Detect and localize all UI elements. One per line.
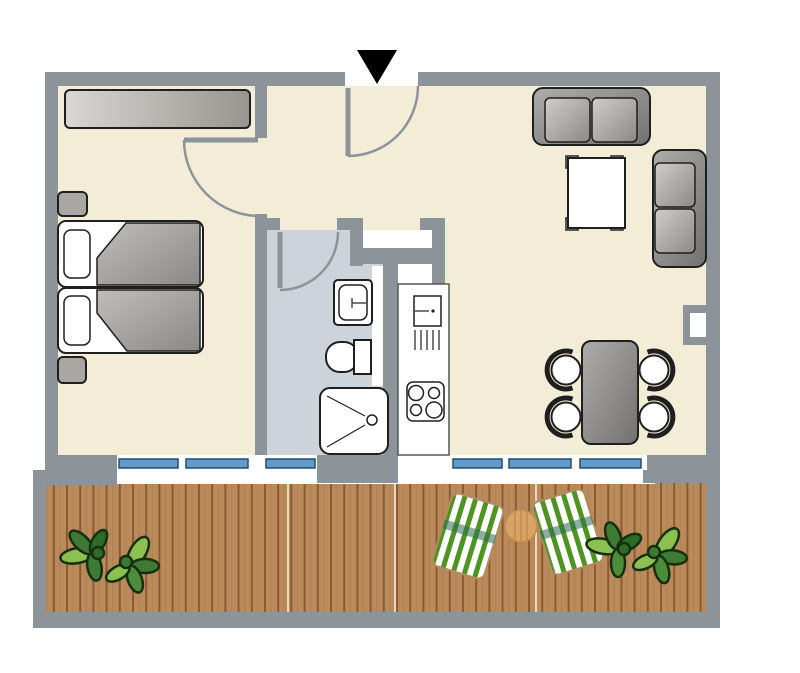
dining-chair xyxy=(552,356,581,385)
bedroom-wall-lower xyxy=(255,214,267,470)
sofa-top-cushion xyxy=(545,98,590,142)
burner xyxy=(409,386,424,401)
bottom-wall-right-block xyxy=(643,455,720,483)
burner xyxy=(426,402,442,418)
toilet-cistern xyxy=(354,340,371,374)
left-wall xyxy=(45,72,58,470)
window-pane xyxy=(580,459,641,468)
shower-drain xyxy=(367,415,377,425)
right-wall-notch-opening xyxy=(690,313,706,337)
dining-table xyxy=(582,341,638,444)
wardrobe xyxy=(65,90,250,128)
bottom-wall-left-block xyxy=(45,455,117,485)
dining-chair xyxy=(552,403,581,432)
window-pane xyxy=(119,459,178,468)
kitchen-sink-dot xyxy=(431,309,434,312)
duct-shaft xyxy=(363,230,432,248)
top-wall-left xyxy=(45,72,345,86)
round-side-table xyxy=(505,510,537,542)
bottom-wall-mid-block xyxy=(317,455,398,483)
bedroom-wall-upper xyxy=(255,86,267,138)
window-pane xyxy=(266,459,315,468)
sofa-top-cushion xyxy=(592,98,637,142)
floor-plan-drawing xyxy=(0,0,800,673)
dining-chair xyxy=(640,356,669,385)
right-wall xyxy=(706,72,720,470)
kitchen-niche-top xyxy=(398,263,432,284)
pillow-top xyxy=(64,230,90,278)
bathroom-north-stub xyxy=(267,218,280,230)
kitchen xyxy=(398,284,449,455)
sofa-right-cushion xyxy=(655,209,695,253)
sofa-right-cushion xyxy=(655,163,695,207)
coffee-table xyxy=(566,156,625,230)
burner xyxy=(429,388,440,399)
nightstand-bottom xyxy=(58,357,86,383)
window-pane xyxy=(453,459,502,468)
entrance-arrow-icon xyxy=(357,50,397,84)
pillow-bottom xyxy=(64,296,90,345)
bathroom-vanity-ledge xyxy=(372,266,383,386)
nightstand-top xyxy=(58,192,87,216)
top-wall-right xyxy=(418,72,720,86)
burner xyxy=(411,405,422,416)
window-pane xyxy=(509,459,571,468)
window-pane xyxy=(186,459,248,468)
floor-plan-canvas xyxy=(0,0,800,673)
coffee-table-top xyxy=(568,158,625,228)
dining-chair xyxy=(640,403,669,432)
